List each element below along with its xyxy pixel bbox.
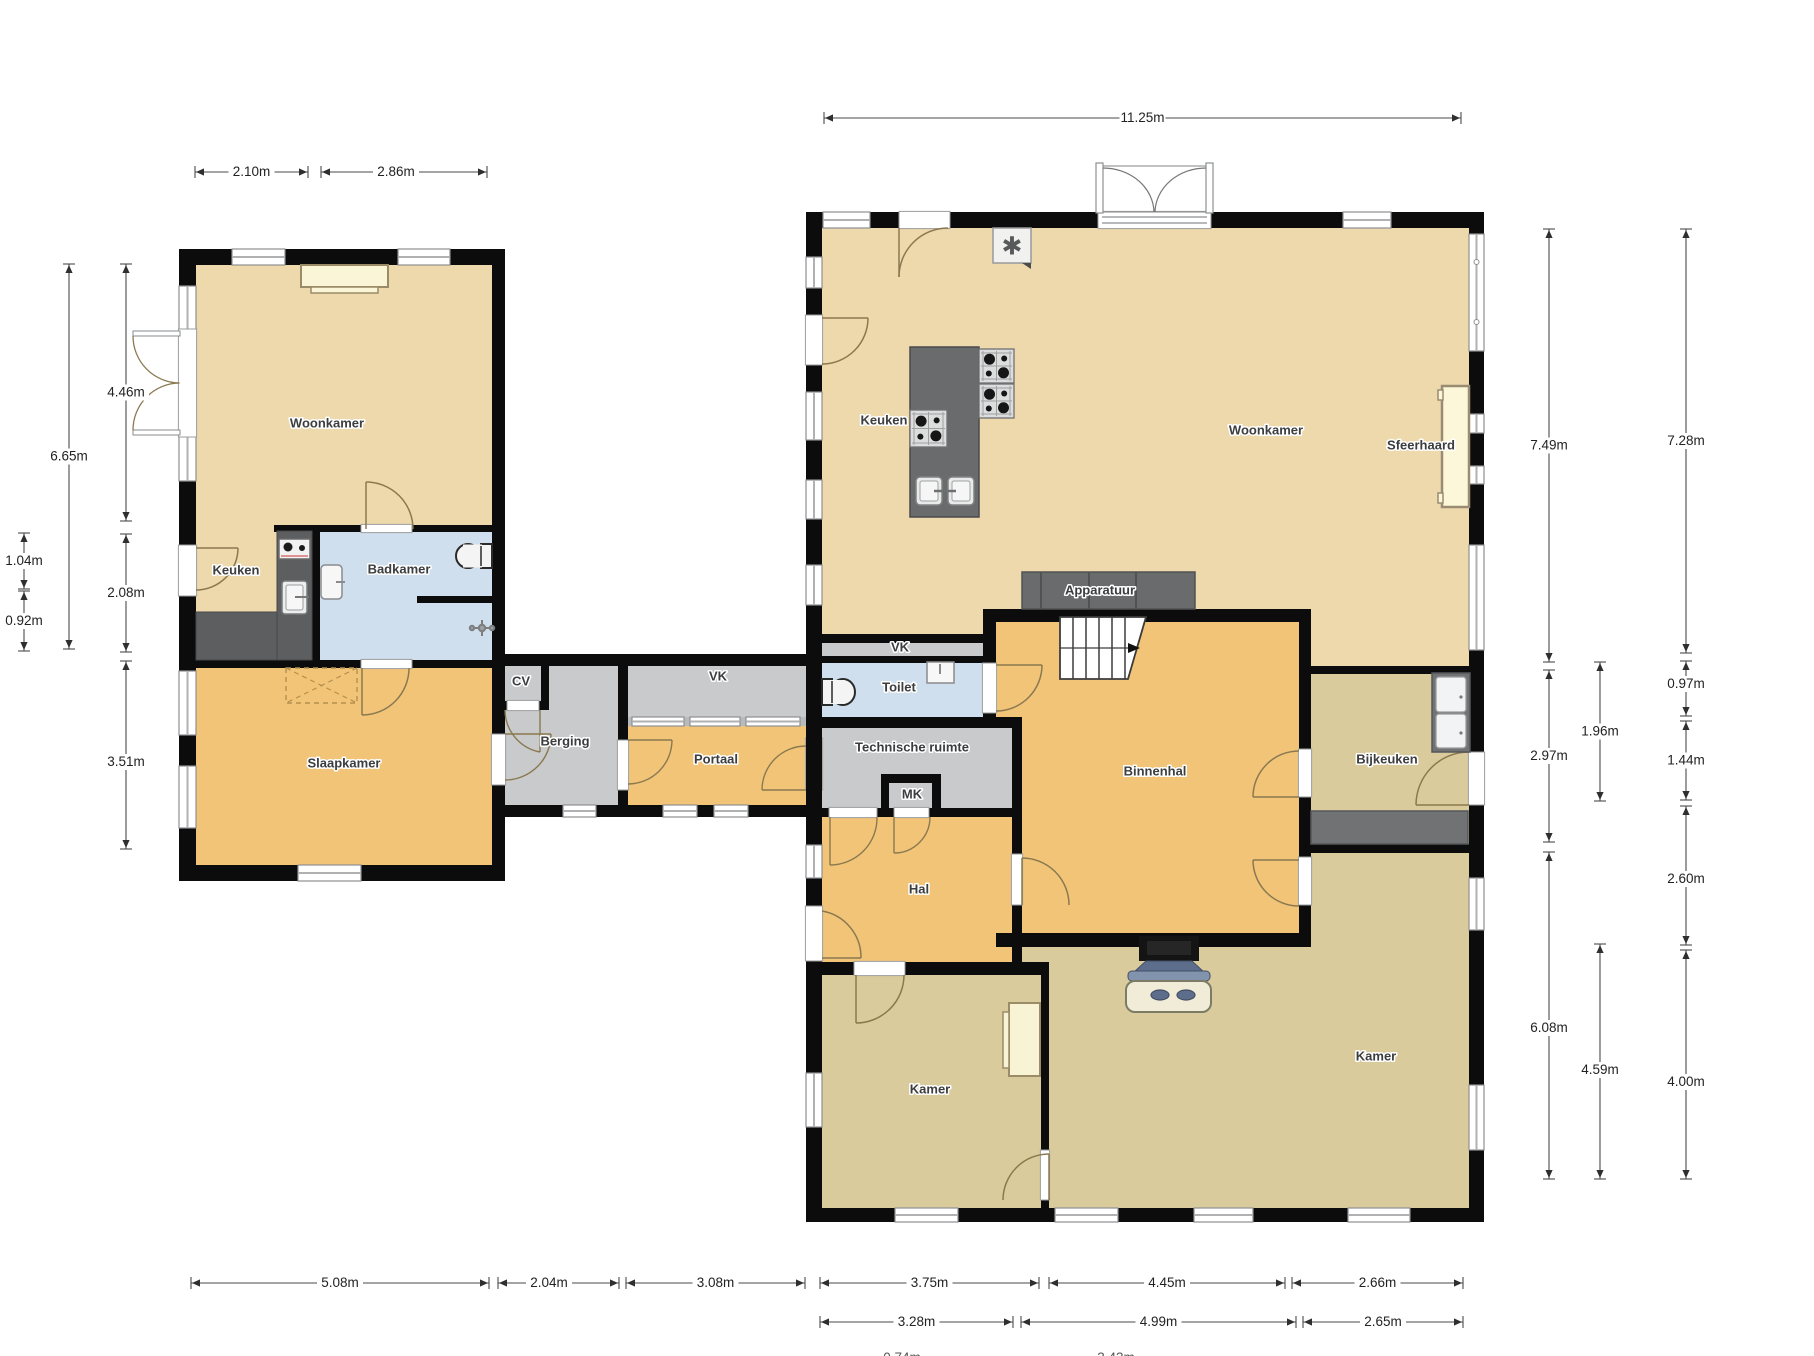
svg-text:7.28m: 7.28m bbox=[1667, 433, 1705, 448]
svg-text:4.59m: 4.59m bbox=[1581, 1062, 1619, 1077]
svg-text:3.51m: 3.51m bbox=[107, 754, 145, 769]
svg-text:VK: VK bbox=[709, 668, 728, 683]
svg-text:Toilet: Toilet bbox=[882, 679, 916, 694]
svg-text:Woonkamer: Woonkamer bbox=[1229, 422, 1303, 437]
svg-text:2.65m: 2.65m bbox=[1364, 1314, 1402, 1329]
svg-text:3.43m: 3.43m bbox=[1097, 1350, 1135, 1356]
svg-text:3.75m: 3.75m bbox=[911, 1275, 949, 1290]
svg-text:0.74m: 0.74m bbox=[883, 1350, 921, 1356]
svg-text:6.65m: 6.65m bbox=[50, 449, 88, 464]
svg-text:Keuken: Keuken bbox=[861, 412, 908, 427]
svg-text:Woonkamer: Woonkamer bbox=[290, 415, 364, 430]
svg-text:0.97m: 0.97m bbox=[1667, 676, 1705, 691]
svg-text:7.49m: 7.49m bbox=[1530, 438, 1568, 453]
svg-text:6.08m: 6.08m bbox=[1530, 1020, 1568, 1035]
svg-text:Technische ruimte: Technische ruimte bbox=[855, 739, 969, 754]
svg-text:Portaal: Portaal bbox=[694, 751, 738, 766]
svg-text:4.99m: 4.99m bbox=[1140, 1314, 1178, 1329]
svg-text:2.60m: 2.60m bbox=[1667, 871, 1705, 886]
svg-text:✱: ✱ bbox=[1002, 233, 1023, 261]
svg-text:2.04m: 2.04m bbox=[530, 1275, 568, 1290]
svg-text:4.46m: 4.46m bbox=[107, 385, 145, 400]
svg-text:1.44m: 1.44m bbox=[1667, 753, 1705, 768]
svg-text:2.97m: 2.97m bbox=[1530, 748, 1568, 763]
svg-text:3.28m: 3.28m bbox=[898, 1314, 936, 1329]
svg-text:5.08m: 5.08m bbox=[321, 1275, 359, 1290]
svg-text:Kamer: Kamer bbox=[1356, 1048, 1396, 1063]
svg-text:11.25m: 11.25m bbox=[1120, 110, 1164, 125]
svg-text:Berging: Berging bbox=[540, 733, 589, 748]
svg-text:4.00m: 4.00m bbox=[1667, 1074, 1705, 1089]
svg-text:Badkamer: Badkamer bbox=[368, 561, 431, 576]
svg-text:Keuken: Keuken bbox=[213, 562, 260, 577]
svg-text:VK: VK bbox=[891, 639, 910, 654]
svg-text:MK: MK bbox=[902, 786, 923, 801]
svg-text:Bijkeuken: Bijkeuken bbox=[1356, 751, 1417, 766]
svg-text:1.04m: 1.04m bbox=[5, 553, 43, 568]
svg-text:Sfeerhaard: Sfeerhaard bbox=[1387, 437, 1455, 452]
svg-text:Kamer: Kamer bbox=[910, 1081, 950, 1096]
svg-text:Slaapkamer: Slaapkamer bbox=[308, 755, 381, 770]
svg-text:Binnenhal: Binnenhal bbox=[1124, 763, 1187, 778]
svg-text:Apparatuur: Apparatuur bbox=[1065, 582, 1135, 597]
svg-text:CV: CV bbox=[512, 673, 530, 688]
svg-text:3.08m: 3.08m bbox=[697, 1275, 735, 1290]
svg-text:2.08m: 2.08m bbox=[107, 585, 145, 600]
svg-text:2.10m: 2.10m bbox=[233, 164, 271, 179]
svg-text:2.66m: 2.66m bbox=[1359, 1275, 1397, 1290]
svg-text:2.86m: 2.86m bbox=[377, 164, 415, 179]
svg-text:1.96m: 1.96m bbox=[1581, 724, 1619, 739]
svg-text:Hal: Hal bbox=[909, 881, 929, 896]
svg-text:4.45m: 4.45m bbox=[1148, 1275, 1186, 1290]
svg-text:0.92m: 0.92m bbox=[5, 613, 43, 628]
